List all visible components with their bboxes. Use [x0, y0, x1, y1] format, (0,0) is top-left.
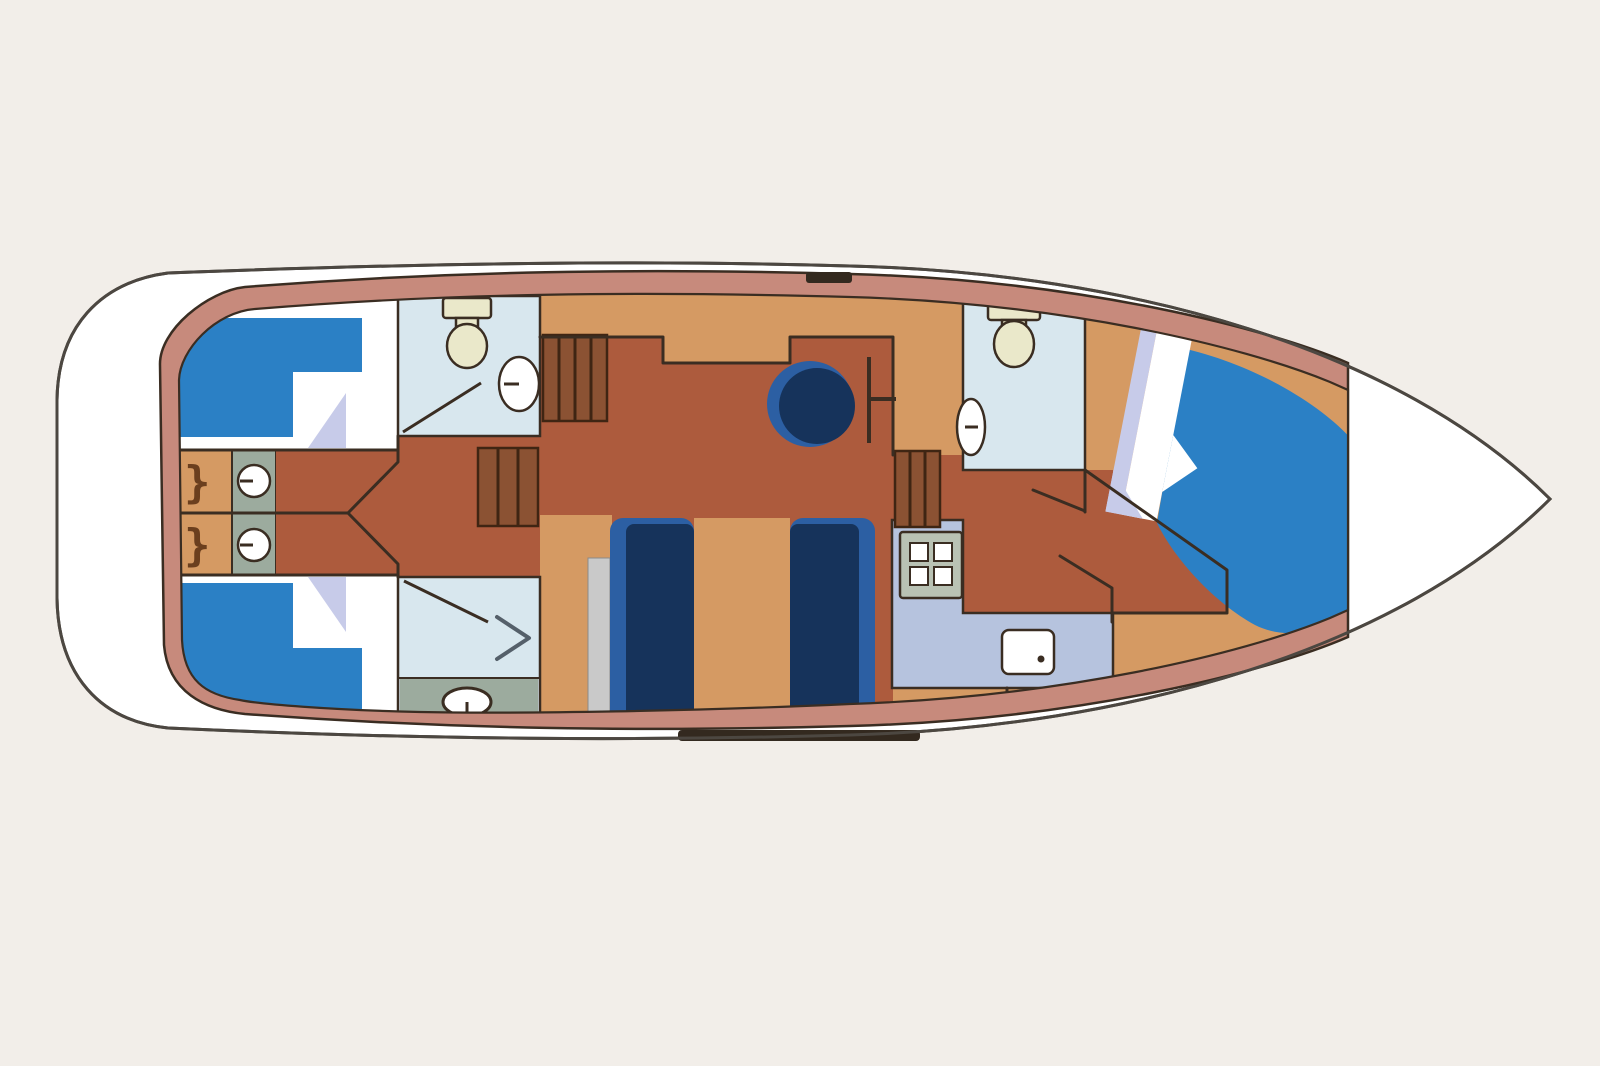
dinette-bench-right [790, 524, 859, 726]
boat-floorplan-page: } } [0, 0, 1600, 1066]
stove-icon [900, 532, 962, 598]
helm-seat [779, 368, 855, 444]
toilet-bowl-icon [447, 324, 487, 368]
stairs-corridor [478, 448, 538, 526]
galley-sink-icon [1002, 630, 1054, 674]
wardrobe-glyph-bottom: } [184, 520, 211, 571]
sink-drain-icon [1038, 656, 1045, 663]
top-cleat [806, 272, 852, 283]
boat-floorplan-diagram: } } [0, 0, 1600, 1066]
stove-burner-icon [934, 567, 952, 585]
stove-burner-icon [910, 543, 928, 561]
dinette-bench-left [626, 524, 694, 726]
dinette-step-strip [588, 558, 610, 726]
stairs-forward [895, 451, 940, 527]
toilet-tank-icon [443, 298, 491, 318]
stove-burner-icon [934, 543, 952, 561]
stove-burner-icon [910, 567, 928, 585]
stairs-aft [543, 335, 607, 421]
dinette-table [694, 518, 790, 726]
wardrobe-glyph-top: } [184, 457, 211, 508]
toilet-bowl-icon [994, 321, 1034, 367]
